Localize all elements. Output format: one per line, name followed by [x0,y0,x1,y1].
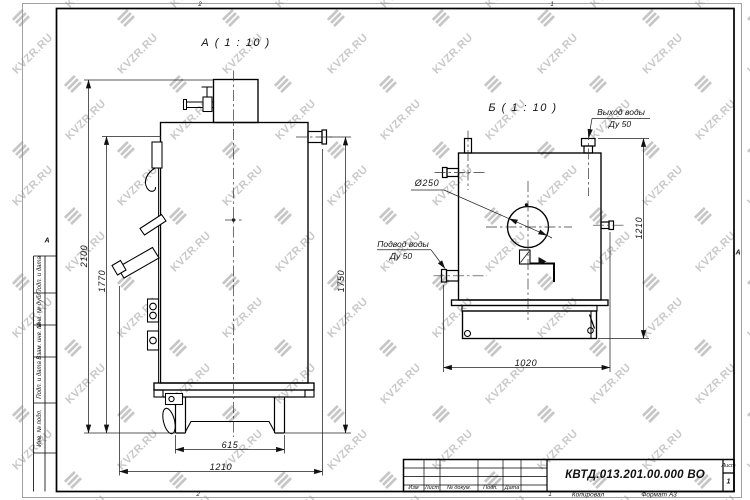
drawing-canvas [0,0,750,500]
margin-cell-vzam-inv: Взам. инв. № [37,322,43,359]
tb-col-ndokum: № докум. [447,485,471,491]
tb-col-podp: Подп. [483,485,498,491]
dim-1210-depth: 1210 [210,462,232,472]
dim-1020: 1020 [515,358,537,368]
zone-right-a: А [735,250,740,257]
tb-col-list: Лист [425,485,439,491]
zone-top-left: 2 [198,2,201,8]
zone-bottom-right: 1 [548,492,551,498]
footer-copied: Копировал [572,492,604,499]
view-a-outline [154,80,327,434]
margin-cell-inv-podl: Инв. № подл. [37,409,43,446]
zone-left-a: А [44,238,49,245]
door-latch-handle [140,215,166,236]
dim-2100: 2100 [79,245,89,267]
margin-cell-podp-data-2: Подп. и дата [37,361,43,399]
view-b-label: Б ( 1 : 10 ) [488,102,557,114]
door-hook [145,168,155,191]
outlet-callout-line1: Выход воды [597,107,645,117]
tb-sheet-label: Лист [721,463,735,469]
zone-top-right: 1 [550,2,553,8]
margin-cell-podp-data-1: Подп. и дата [37,256,43,294]
ash-box [463,311,597,339]
dim-diameter-250: Ø250 [415,178,439,188]
view-b-outline [442,139,614,339]
view-a-centerlines [225,71,334,438]
sheet-frame [23,4,742,498]
view-b-centerlines [434,129,627,320]
dim-1750: 1750 [336,270,346,292]
door-lever [118,248,160,279]
view-a-label: А ( 1 : 10 ) [201,37,270,49]
hinge-plate-lower [148,331,159,350]
tb-sheet-number: 1 [727,479,731,486]
dim-615: 615 [222,440,239,450]
tb-col-izm: Изм [408,485,418,491]
dim-1210-height: 1210 [634,217,644,239]
title-designation: КВТД.013.201.00.000 ВО [565,469,705,481]
outlet-callout-line2: Ду 50 [609,119,631,129]
dim-1770: 1770 [97,270,107,292]
drain-valve-pipe [530,264,554,283]
drawing-sheet: KVZR.RUKVZR.RUKVZR.RUKVZR.RUKVZR.RUKVZR.… [0,0,750,500]
upper-door-bracket [152,142,162,168]
zone-bottom-left: 2 [196,492,199,498]
view-b-dimensions [444,139,650,373]
tb-col-data: Дата [505,485,520,491]
view-b-details [520,203,555,282]
footer-format: Формат А3 [641,492,677,499]
inlet-callout-line1: Подвод воды [377,239,429,249]
inlet-callout-line2: Ду 50 [390,251,412,261]
